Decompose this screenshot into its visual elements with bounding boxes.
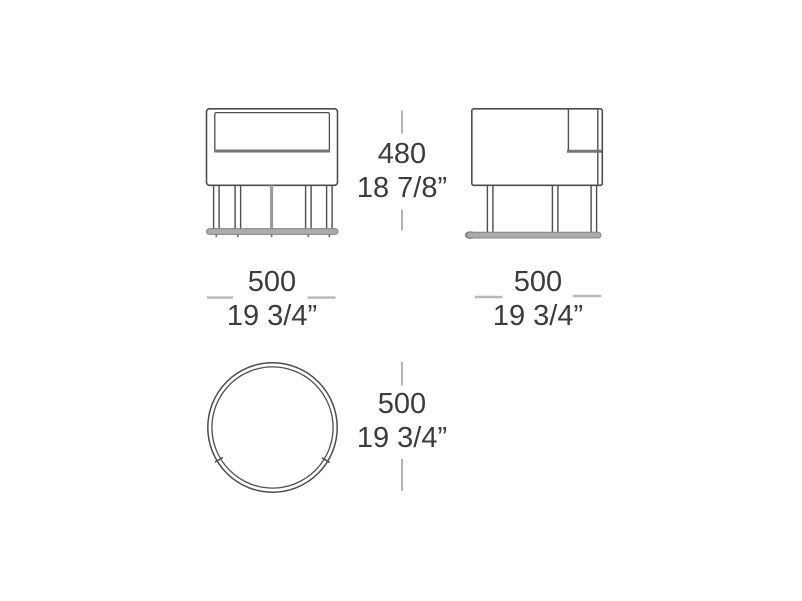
- height-dimension-mm: 480: [327, 137, 477, 171]
- front-legs: [214, 185, 333, 229]
- side-legs: [487, 185, 596, 232]
- side-width-dimension-mm: 500: [463, 265, 613, 299]
- height-dimension-inches: 18 7/8”: [327, 171, 477, 205]
- dimension-drawing-canvas: 480 18 7/8” 500 19 3/4” 500 19 3/4” 500 …: [0, 0, 802, 601]
- front-view: [207, 109, 339, 237]
- front-recess-panel: [215, 113, 330, 151]
- front-base-ring: [207, 229, 339, 235]
- line-art: [0, 0, 802, 601]
- top-inner-ring: [212, 367, 333, 488]
- front-width-dimension-mm: 500: [197, 265, 347, 299]
- front-width-dimension-label: 500 19 3/4”: [197, 265, 347, 333]
- side-width-dimension-label: 500 19 3/4”: [463, 265, 613, 333]
- front-width-dimension-inches: 19 3/4”: [197, 299, 347, 333]
- top-diameter-dimension-mm: 500: [327, 387, 477, 421]
- side-view: [465, 109, 602, 239]
- side-base-ring: [467, 232, 601, 238]
- top-diameter-dimension-label: 500 19 3/4”: [327, 387, 477, 455]
- top-view: [208, 363, 337, 492]
- side-body-outline: [472, 109, 603, 186]
- top-diameter-dimension-inches: 19 3/4”: [327, 421, 477, 455]
- top-outer-ring: [208, 363, 337, 492]
- height-dimension-label: 480 18 7/8”: [327, 137, 477, 205]
- side-width-dimension-inches: 19 3/4”: [463, 299, 613, 333]
